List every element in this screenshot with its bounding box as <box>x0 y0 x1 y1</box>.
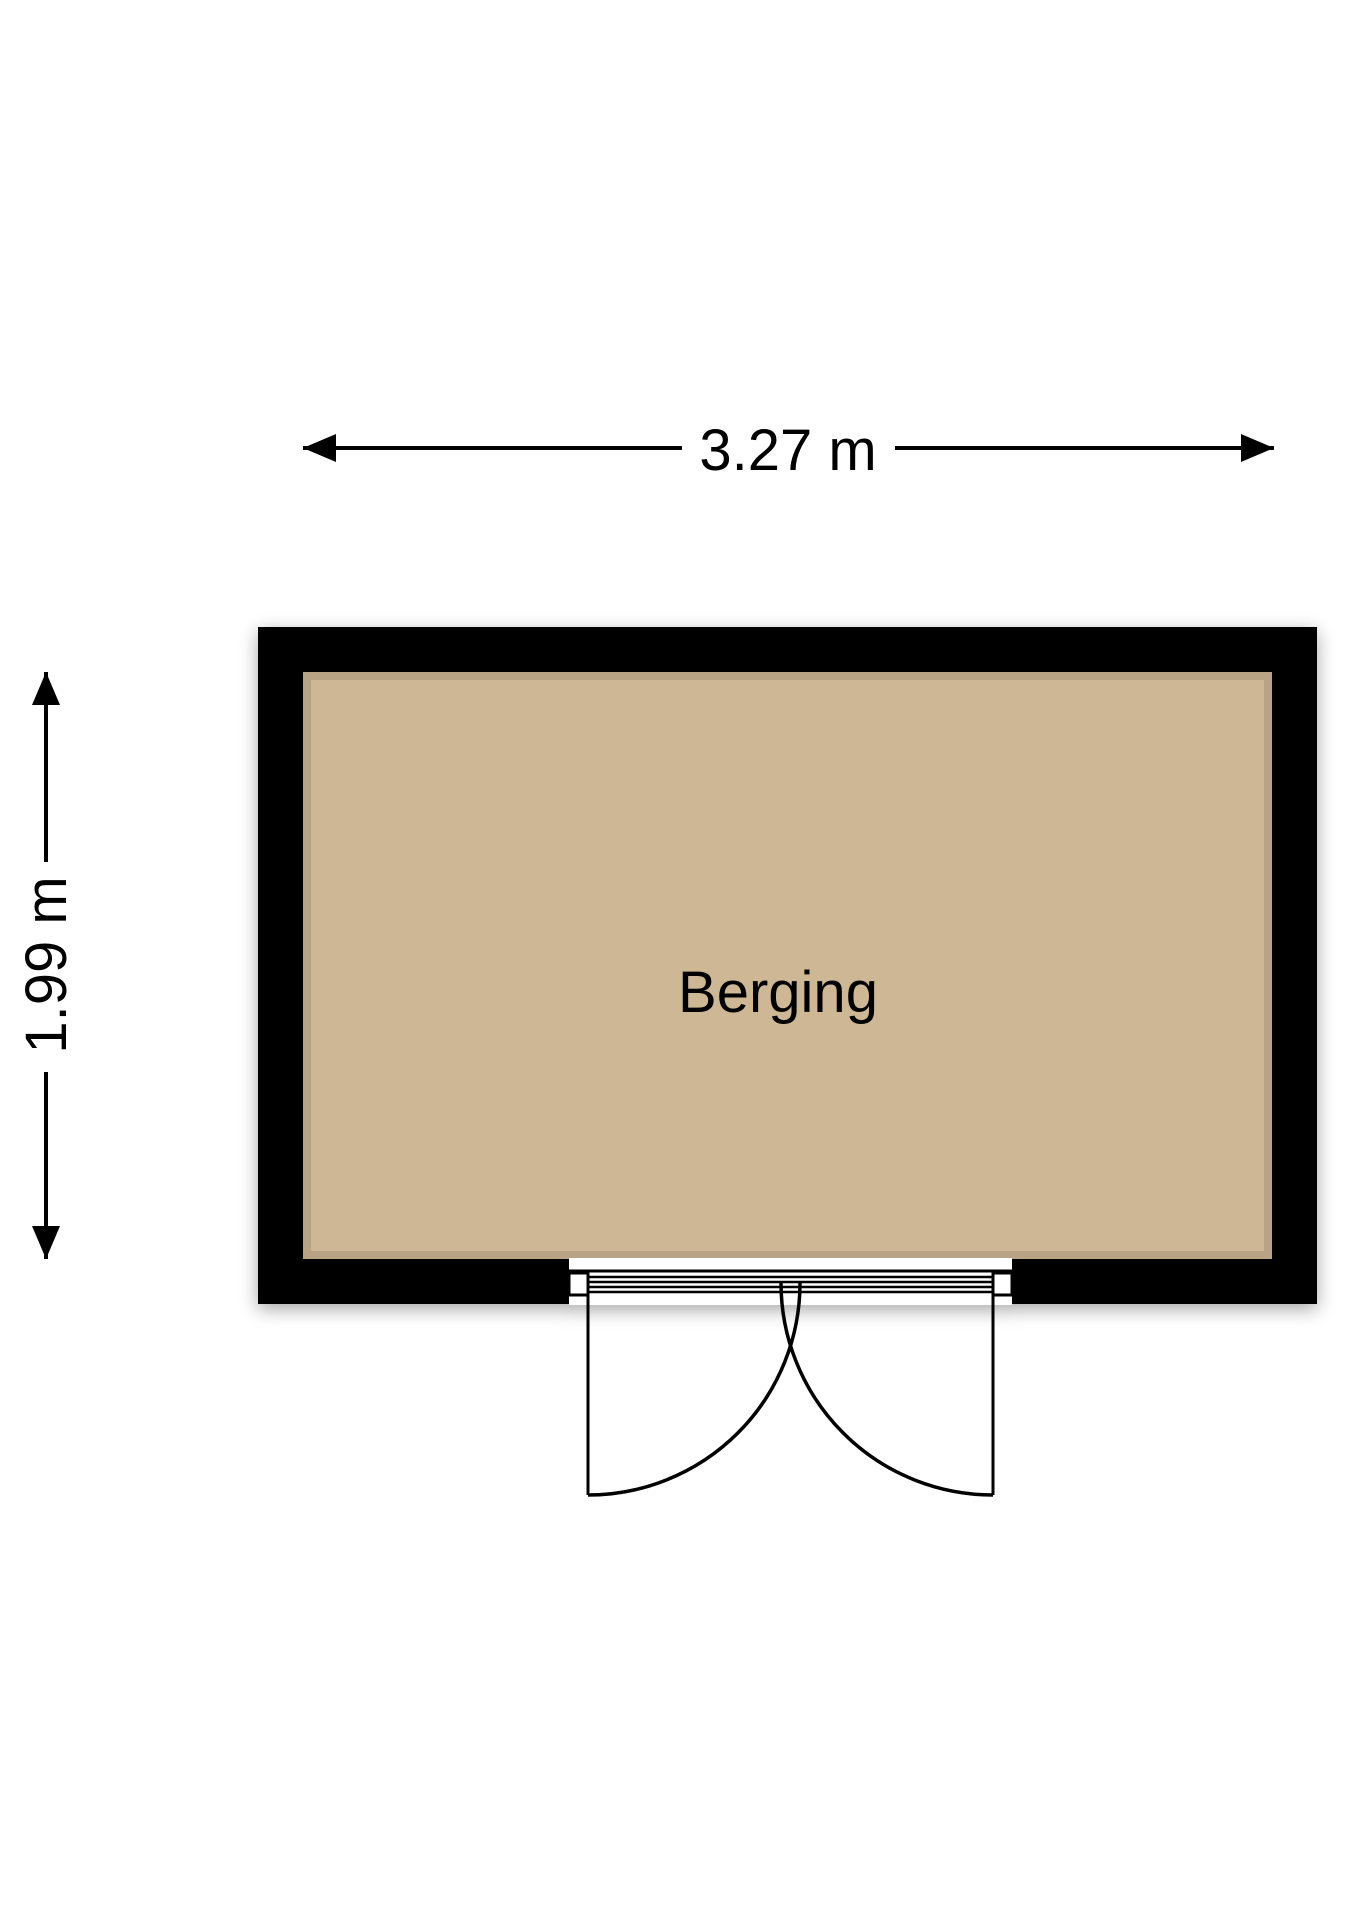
arrow-right-icon <box>1241 434 1274 462</box>
door-swing-arc-left <box>588 1283 800 1495</box>
arrow-left-icon <box>303 434 336 462</box>
width-dimension-label: 3.27 m <box>699 418 876 483</box>
floorplan-page: 3.27 m 1.99 m Berging <box>0 0 1358 1920</box>
arrow-up-icon <box>32 672 60 705</box>
floorplan-canvas: 3.27 m 1.99 m Berging <box>0 0 1358 1920</box>
arrow-down-icon <box>32 1226 60 1259</box>
room-label: Berging <box>678 960 878 1025</box>
door-jamb-left <box>569 1273 588 1295</box>
door-jamb-right <box>993 1273 1012 1295</box>
door-swing-arc-right <box>781 1283 993 1495</box>
height-dimension-label: 1.99 m <box>14 876 79 1053</box>
